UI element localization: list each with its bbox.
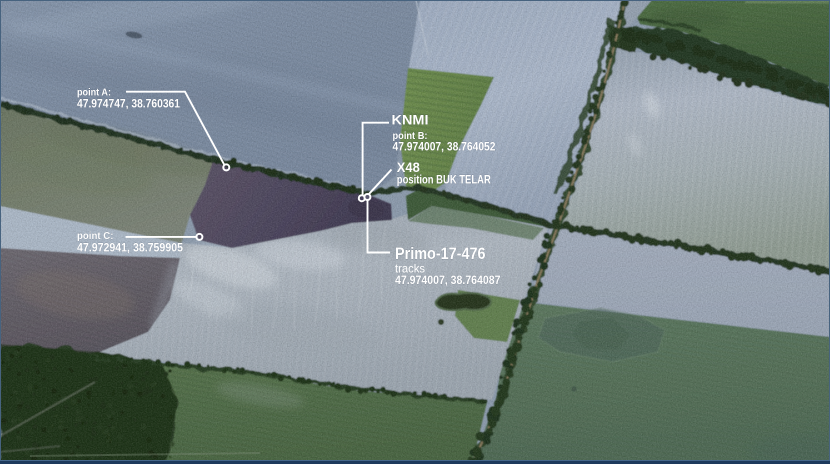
svg-text:position BUK TELAR: position BUK TELAR (397, 174, 492, 186)
svg-text:47.974007, 38.764087: 47.974007, 38.764087 (395, 273, 501, 287)
svg-text:47.974747, 38.760361: 47.974747, 38.760361 (77, 96, 180, 110)
svg-text:47.972941, 38.759905: 47.972941, 38.759905 (77, 240, 183, 254)
svg-text:X48: X48 (397, 159, 420, 175)
svg-text:47.974007, 38.764052: 47.974007, 38.764052 (393, 140, 496, 154)
svg-text:Primo-17-476: Primo-17-476 (395, 244, 486, 263)
svg-text:KNMI: KNMI (392, 112, 429, 128)
